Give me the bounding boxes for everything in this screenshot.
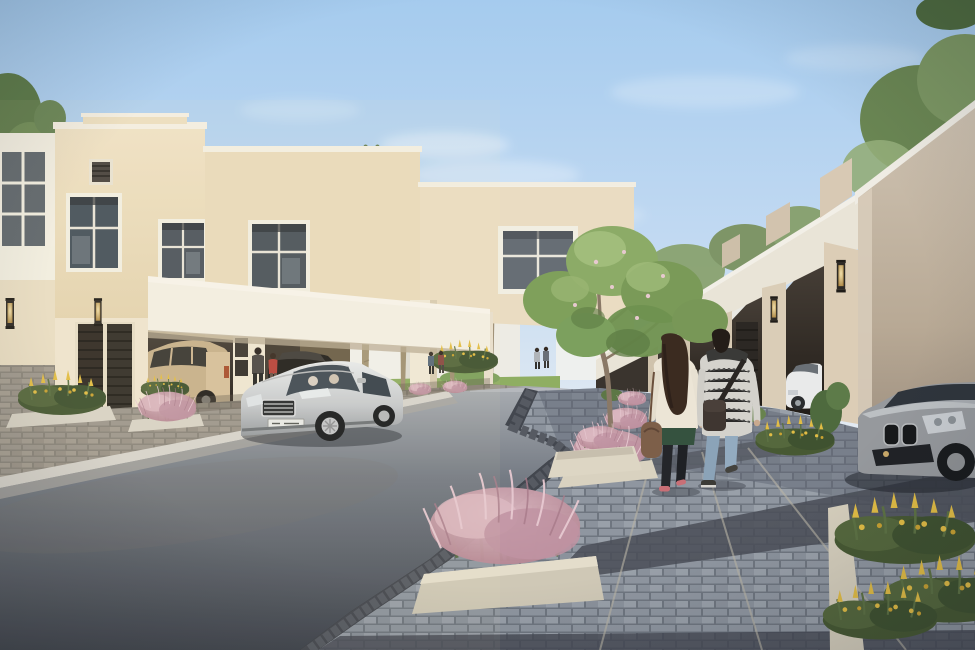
- street-scene: [0, 0, 975, 650]
- scene-canvas: [0, 0, 975, 650]
- vignette: [0, 0, 975, 650]
